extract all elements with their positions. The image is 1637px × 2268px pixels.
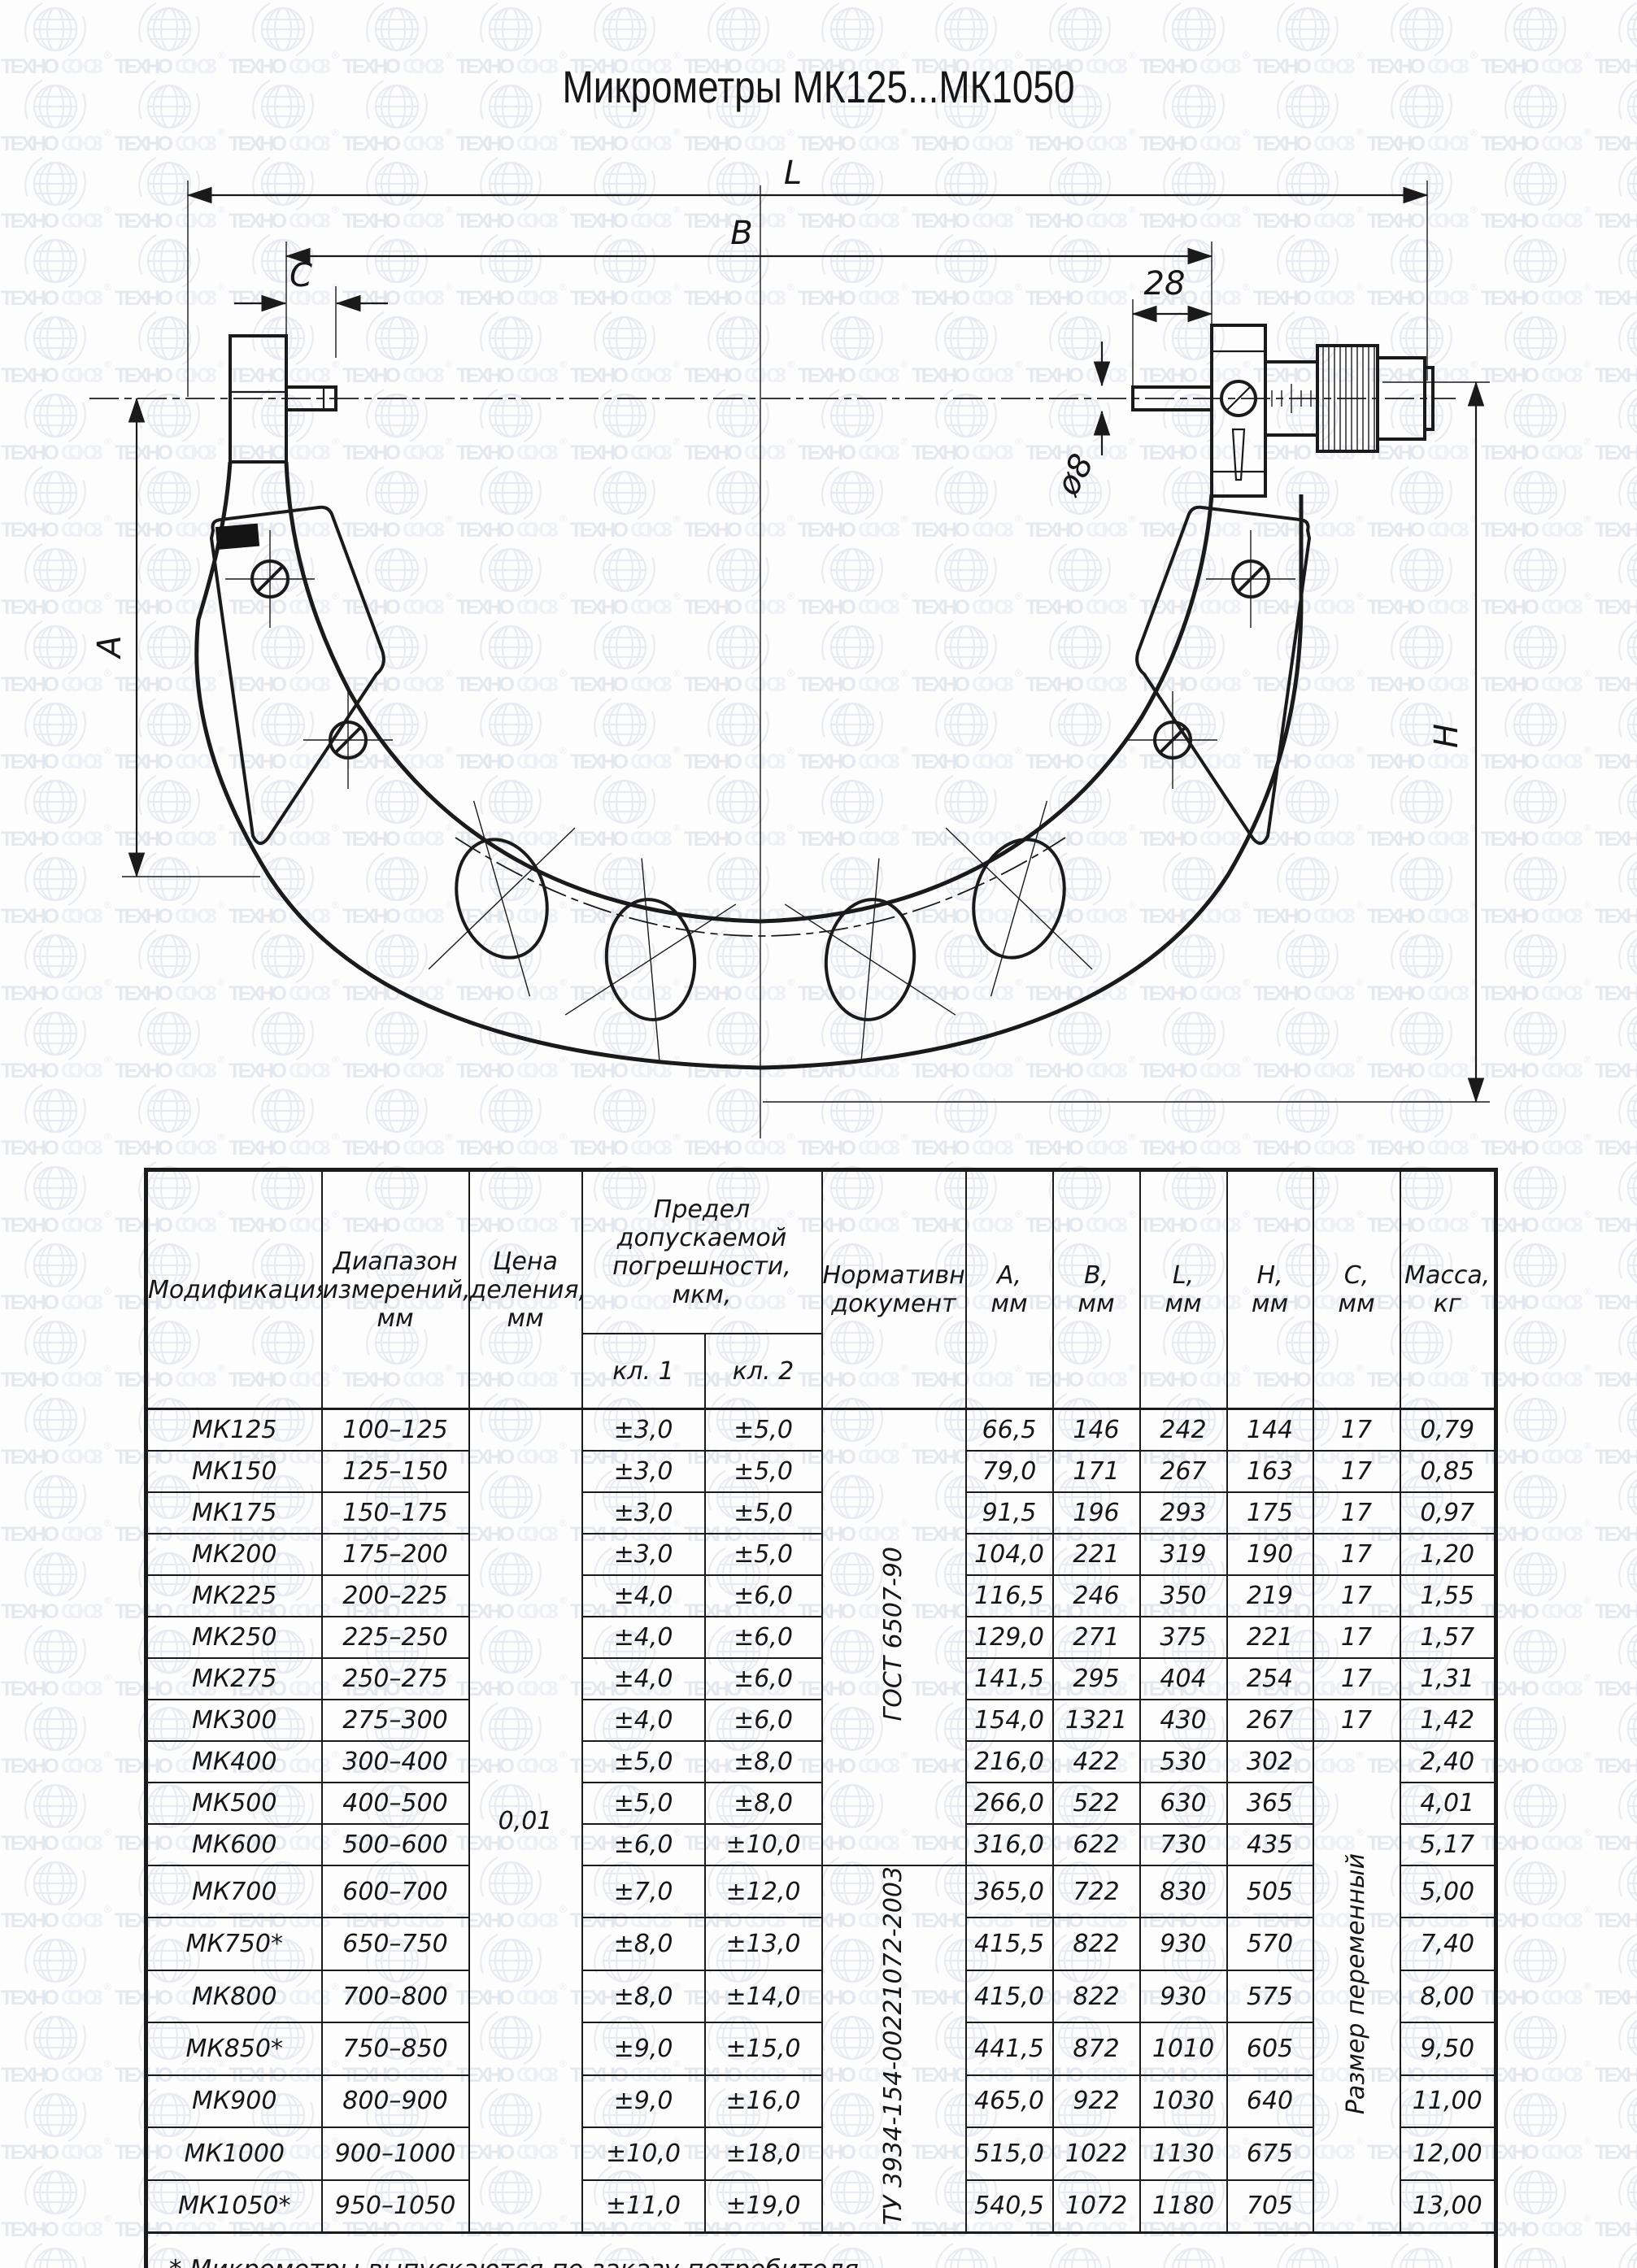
dim-label-A: A <box>91 635 128 660</box>
h-cell: 435 <box>1227 1824 1313 1865</box>
class1-cell: ±3,0 <box>582 1534 705 1575</box>
table-row: МК175150–175±3,0±5,091,5196293175170,97 <box>146 1492 1496 1534</box>
class1-cell: ±9,0 <box>582 2075 705 2127</box>
a-cell: 104,0 <box>966 1534 1053 1575</box>
range-cell: 900–1000 <box>322 2127 469 2179</box>
l-cell: 730 <box>1140 1824 1227 1865</box>
b-cell: 822 <box>1053 1970 1140 2022</box>
h-cell: 365 <box>1227 1783 1313 1824</box>
b-cell: 822 <box>1053 1918 1140 1970</box>
h-cell: 254 <box>1227 1658 1313 1700</box>
micrometer-drawing: L B C 28 ø8 <box>0 0 1637 1163</box>
c-cell: 17 <box>1313 1575 1400 1617</box>
l-cell: 430 <box>1140 1700 1227 1741</box>
class1-cell: ±8,0 <box>582 1918 705 1970</box>
h-cell: 221 <box>1227 1617 1313 1658</box>
spec-table: Модификация Диапазон измерений, мм Цена … <box>144 1168 1498 2268</box>
range-cell: 225–250 <box>322 1617 469 1658</box>
model-cell: МК900 <box>146 2075 322 2127</box>
c-variable-cell-text: Размер переменный <box>1344 1853 1369 2114</box>
dimension-28: 28 <box>1133 265 1212 385</box>
h-cell: 640 <box>1227 2075 1313 2127</box>
class1-cell: ±3,0 <box>582 1492 705 1534</box>
c-cell: 17 <box>1313 1409 1400 1452</box>
b-cell: 146 <box>1053 1409 1140 1452</box>
table-row: МК800700–800±8,0±14,0415,08229305758,00 <box>146 1970 1496 2022</box>
l-cell: 293 <box>1140 1492 1227 1534</box>
col-header-class2: кл. 2 <box>705 1334 822 1409</box>
table-row: МК225200–225±4,0±6,0116,5246350219171,55 <box>146 1575 1496 1617</box>
table-row: МК125100–1250,01±3,0±5,0ГОСТ 6507-9066,5… <box>146 1409 1496 1452</box>
dim-label-H: H <box>1428 724 1465 748</box>
model-cell: МК750* <box>146 1918 322 1970</box>
b-cell: 295 <box>1053 1658 1140 1700</box>
doc-gost-cell: ГОСТ 6507-90 <box>822 1409 966 1866</box>
scanned-datasheet-page: ТЕХНО СОЮЗ ® Микрометры МК125...МК1050 L <box>0 0 1637 2268</box>
class2-cell: ±13,0 <box>705 1918 822 1970</box>
class2-cell: ±5,0 <box>705 1534 822 1575</box>
model-cell: МК300 <box>146 1700 322 1741</box>
table-row: МК300275–300±4,0±6,0154,01321430267171,4… <box>146 1700 1496 1741</box>
class1-cell: ±8,0 <box>582 1970 705 2022</box>
table-row: МК900800–900±9,0±16,0465,0922103064011,0… <box>146 2075 1496 2127</box>
a-cell: 91,5 <box>966 1492 1053 1534</box>
dimension-A: A <box>91 398 260 877</box>
class2-cell: ±6,0 <box>705 1700 822 1741</box>
heat-pad-left <box>211 507 393 843</box>
class1-cell: ±7,0 <box>582 1865 705 1918</box>
c-cell: 17 <box>1313 1617 1400 1658</box>
col-header-l: L, мм <box>1140 1170 1227 1409</box>
b-cell: 622 <box>1053 1824 1140 1865</box>
class2-cell: ±6,0 <box>705 1575 822 1617</box>
mass-cell: 1,31 <box>1400 1658 1496 1700</box>
mass-cell: 1,57 <box>1400 1617 1496 1658</box>
mass-cell: 13,00 <box>1400 2180 1496 2233</box>
range-cell: 400–500 <box>322 1783 469 1824</box>
h-cell: 144 <box>1227 1409 1313 1452</box>
b-cell: 221 <box>1053 1534 1140 1575</box>
a-cell: 129,0 <box>966 1617 1053 1658</box>
class2-cell: ±10,0 <box>705 1824 822 1865</box>
b-cell: 1072 <box>1053 2180 1140 2233</box>
col-header-document: Нормативный документ <box>822 1170 966 1409</box>
l-cell: 242 <box>1140 1409 1227 1452</box>
table-row: МК400300–400±5,0±8,0216,0422530302Размер… <box>146 1741 1496 1783</box>
mass-cell: 11,00 <box>1400 2075 1496 2127</box>
dimension-B: B <box>286 215 1212 385</box>
b-cell: 1321 <box>1053 1700 1140 1741</box>
class2-cell: ±18,0 <box>705 2127 822 2179</box>
h-cell: 675 <box>1227 2127 1313 2179</box>
class1-cell: ±4,0 <box>582 1700 705 1741</box>
l-cell: 630 <box>1140 1783 1227 1824</box>
mass-cell: 5,17 <box>1400 1824 1496 1865</box>
range-cell: 600–700 <box>322 1865 469 1918</box>
dim-label-28: 28 <box>1144 265 1186 303</box>
spec-table-header: Модификация Диапазон измерений, мм Цена … <box>146 1170 1496 1409</box>
h-cell: 705 <box>1227 2180 1313 2233</box>
a-cell: 154,0 <box>966 1700 1053 1741</box>
range-cell: 300–400 <box>322 1741 469 1783</box>
dimension-C: C <box>234 257 388 358</box>
range-cell: 125–150 <box>322 1451 469 1492</box>
a-cell: 415,0 <box>966 1970 1053 2022</box>
a-cell: 79,0 <box>966 1451 1053 1492</box>
spec-table-body: МК125100–1250,01±3,0±5,0ГОСТ 6507-9066,5… <box>146 1409 1496 2233</box>
class2-cell: ±8,0 <box>705 1783 822 1824</box>
l-cell: 1180 <box>1140 2180 1227 2233</box>
model-cell: МК150 <box>146 1451 322 1492</box>
range-cell: 275–300 <box>322 1700 469 1741</box>
heat-pad-right <box>1128 507 1309 843</box>
class2-cell: ±19,0 <box>705 2180 822 2233</box>
mass-cell: 5,00 <box>1400 1865 1496 1918</box>
model-cell: МК400 <box>146 1741 322 1783</box>
l-cell: 1130 <box>1140 2127 1227 2179</box>
h-cell: 267 <box>1227 1700 1313 1741</box>
a-cell: 441,5 <box>966 2022 1053 2074</box>
b-cell: 271 <box>1053 1617 1140 1658</box>
class1-cell: ±3,0 <box>582 1451 705 1492</box>
a-cell: 540,5 <box>966 2180 1053 2233</box>
l-cell: 1010 <box>1140 2022 1227 2074</box>
dimension-L: L <box>188 155 1427 397</box>
range-cell: 150–175 <box>322 1492 469 1534</box>
a-cell: 116,5 <box>966 1575 1053 1617</box>
doc-tu-cell: ТУ 3934-154-00221072-2003 <box>822 1865 966 2233</box>
mass-cell: 1,20 <box>1400 1534 1496 1575</box>
mass-cell: 1,42 <box>1400 1700 1496 1741</box>
mass-cell: 7,40 <box>1400 1918 1496 1970</box>
dim-label-B: B <box>730 215 752 252</box>
model-cell: МК600 <box>146 1824 322 1865</box>
a-cell: 216,0 <box>966 1741 1053 1783</box>
class2-cell: ±5,0 <box>705 1492 822 1534</box>
col-header-error-limit: Предел допускаемой погрешности, мкм, <box>582 1170 822 1334</box>
l-cell: 830 <box>1140 1865 1227 1918</box>
c-cell: 17 <box>1313 1451 1400 1492</box>
l-cell: 930 <box>1140 1970 1227 2022</box>
class1-cell: ±9,0 <box>582 2022 705 2074</box>
col-header-class1: кл. 1 <box>582 1334 705 1409</box>
model-cell: МК1050* <box>146 2180 322 2233</box>
col-header-b: В, мм <box>1053 1170 1140 1409</box>
frame-body <box>197 462 1301 1068</box>
col-header-c: С, мм <box>1313 1170 1400 1409</box>
a-cell: 316,0 <box>966 1824 1053 1865</box>
col-header-mass: Масса, кг <box>1400 1170 1496 1409</box>
a-cell: 415,5 <box>966 1918 1053 1970</box>
table-row: МК1050*950–1050±11,0±19,0540,51072118070… <box>146 2180 1496 2233</box>
clamp-screw <box>1221 381 1256 480</box>
l-cell: 267 <box>1140 1451 1227 1492</box>
b-cell: 246 <box>1053 1575 1140 1617</box>
b-cell: 171 <box>1053 1451 1140 1492</box>
l-cell: 930 <box>1140 1918 1227 1970</box>
footnote-row: * Микрометры выпускаются по заказу потре… <box>146 2233 1496 2268</box>
doc-tu-cell-text: ТУ 3934-154-00221072-2003 <box>882 1866 906 2225</box>
spec-table-footer: * Микрометры выпускаются по заказу потре… <box>146 2233 1496 2268</box>
class1-cell: ±4,0 <box>582 1575 705 1617</box>
pad-label-plate <box>216 524 259 550</box>
class2-cell: ±12,0 <box>705 1865 822 1918</box>
model-cell: МК200 <box>146 1534 322 1575</box>
class2-cell: ±16,0 <box>705 2075 822 2127</box>
l-cell: 404 <box>1140 1658 1227 1700</box>
table-row: МК200175–200±3,0±5,0104,0221319190171,20 <box>146 1534 1496 1575</box>
model-cell: МК700 <box>146 1865 322 1918</box>
a-cell: 141,5 <box>966 1658 1053 1700</box>
col-header-a: А, мм <box>966 1170 1053 1409</box>
dimension-dia8: ø8 <box>1049 342 1102 503</box>
mass-cell: 2,40 <box>1400 1741 1496 1783</box>
class1-cell: ±3,0 <box>582 1409 705 1452</box>
range-cell: 500–600 <box>322 1824 469 1865</box>
dim-label-L: L <box>784 155 802 192</box>
cap-end <box>1425 368 1433 429</box>
h-cell: 190 <box>1227 1534 1313 1575</box>
model-cell: МК225 <box>146 1575 322 1617</box>
range-cell: 800–900 <box>322 2075 469 2127</box>
c-cell: 17 <box>1313 1534 1400 1575</box>
mass-cell: 9,50 <box>1400 2022 1496 2074</box>
range-cell: 700–800 <box>322 1970 469 2022</box>
range-cell: 200–225 <box>322 1575 469 1617</box>
col-header-modification: Модификация <box>146 1170 322 1409</box>
table-row: МК750*650–750±8,0±13,0415,58229305707,40 <box>146 1918 1496 1970</box>
class2-cell: ±14,0 <box>705 1970 822 2022</box>
model-cell: МК500 <box>146 1783 322 1824</box>
class2-cell: ±5,0 <box>705 1409 822 1452</box>
b-cell: 1022 <box>1053 2127 1140 2179</box>
l-cell: 375 <box>1140 1617 1227 1658</box>
l-cell: 350 <box>1140 1575 1227 1617</box>
b-cell: 522 <box>1053 1783 1140 1824</box>
b-cell: 922 <box>1053 2075 1140 2127</box>
range-cell: 750–850 <box>322 2022 469 2074</box>
h-cell: 302 <box>1227 1741 1313 1783</box>
mass-cell: 0,79 <box>1400 1409 1496 1452</box>
model-cell: МК250 <box>146 1617 322 1658</box>
range-cell: 100–125 <box>322 1409 469 1452</box>
table-row: МК600500–600±6,0±10,0316,06227304355,17 <box>146 1824 1496 1865</box>
a-cell: 465,0 <box>966 2075 1053 2127</box>
range-cell: 950–1050 <box>322 2180 469 2233</box>
range-cell: 650–750 <box>322 1918 469 1970</box>
class2-cell: ±15,0 <box>705 2022 822 2074</box>
class1-cell: ±5,0 <box>582 1741 705 1783</box>
pad-screw <box>303 691 393 789</box>
table-row: МК150125–150±3,0±5,079,0171267163170,85 <box>146 1451 1496 1492</box>
model-cell: МК275 <box>146 1658 322 1700</box>
model-cell: МК175 <box>146 1492 322 1534</box>
class2-cell: ±6,0 <box>705 1617 822 1658</box>
mass-cell: 4,01 <box>1400 1783 1496 1824</box>
a-cell: 66,5 <box>966 1409 1053 1452</box>
class1-cell: ±4,0 <box>582 1658 705 1700</box>
h-cell: 219 <box>1227 1575 1313 1617</box>
micrometer-head <box>1133 325 1433 496</box>
dim-label-C: C <box>290 257 312 294</box>
division-value-cell: 0,01 <box>469 1409 582 2233</box>
table-row: МК250225–250±4,0±6,0129,0271375221171,57 <box>146 1617 1496 1658</box>
class1-cell: ±5,0 <box>582 1783 705 1824</box>
dim-label-dia8: ø8 <box>1049 448 1102 503</box>
table-row: МК700600–700±7,0±12,0ТУ 3934-154-0022107… <box>146 1865 1496 1918</box>
header-row-1: Модификация Диапазон измерений, мм Цена … <box>146 1170 1496 1334</box>
a-cell: 515,0 <box>966 2127 1053 2179</box>
doc-gost-cell-text: ГОСТ 6507-90 <box>882 1547 906 1721</box>
h-cell: 175 <box>1227 1492 1313 1534</box>
col-header-division: Цена деления, мм <box>469 1170 582 1409</box>
table-row: МК1000900–1000±10,0±18,0515,010221130675… <box>146 2127 1496 2179</box>
model-cell: МК850* <box>146 2022 322 2074</box>
a-cell: 365,0 <box>966 1865 1053 1918</box>
c-variable-cell: Размер переменный <box>1313 1741 1400 2233</box>
h-cell: 605 <box>1227 2022 1313 2074</box>
class1-cell: ±10,0 <box>582 2127 705 2179</box>
col-header-range: Диапазон измерений, мм <box>322 1170 469 1409</box>
class1-cell: ±4,0 <box>582 1617 705 1658</box>
b-cell: 872 <box>1053 2022 1140 2074</box>
b-cell: 422 <box>1053 1741 1140 1783</box>
b-cell: 196 <box>1053 1492 1140 1534</box>
c-cell: 17 <box>1313 1700 1400 1741</box>
model-cell: МК1000 <box>146 2127 322 2179</box>
l-cell: 1030 <box>1140 2075 1227 2127</box>
range-cell: 175–200 <box>322 1534 469 1575</box>
pad-screw <box>1128 691 1217 789</box>
class2-cell: ±5,0 <box>705 1451 822 1492</box>
class2-cell: ±6,0 <box>705 1658 822 1700</box>
mass-cell: 0,85 <box>1400 1451 1496 1492</box>
class1-cell: ±11,0 <box>582 2180 705 2233</box>
mass-cell: 8,00 <box>1400 1970 1496 2022</box>
c-cell: 17 <box>1313 1492 1400 1534</box>
range-cell: 250–275 <box>322 1658 469 1700</box>
model-cell: МК800 <box>146 1970 322 2022</box>
mass-cell: 0,97 <box>1400 1492 1496 1534</box>
table-row: МК275250–275±4,0±6,0141,5295404254171,31 <box>146 1658 1496 1700</box>
footnote-text: * Микрометры выпускаются по заказу потре… <box>146 2233 1496 2268</box>
mass-cell: 1,55 <box>1400 1575 1496 1617</box>
mass-cell: 12,00 <box>1400 2127 1496 2179</box>
col-header-h: Н, мм <box>1227 1170 1313 1409</box>
table-row: МК500400–500±5,0±8,0266,05226303654,01 <box>146 1783 1496 1824</box>
a-cell: 266,0 <box>966 1783 1053 1824</box>
h-cell: 163 <box>1227 1451 1313 1492</box>
h-cell: 575 <box>1227 1970 1313 2022</box>
class1-cell: ±6,0 <box>582 1824 705 1865</box>
l-cell: 319 <box>1140 1534 1227 1575</box>
h-cell: 570 <box>1227 1918 1313 1970</box>
b-cell: 722 <box>1053 1865 1140 1918</box>
c-cell: 17 <box>1313 1658 1400 1700</box>
pad-screw <box>1206 530 1295 628</box>
model-cell: МК125 <box>146 1409 322 1452</box>
class2-cell: ±8,0 <box>705 1741 822 1783</box>
l-cell: 530 <box>1140 1741 1227 1783</box>
table-row: МК850*750–850±9,0±15,0441,587210106059,5… <box>146 2022 1496 2074</box>
h-cell: 505 <box>1227 1865 1313 1918</box>
